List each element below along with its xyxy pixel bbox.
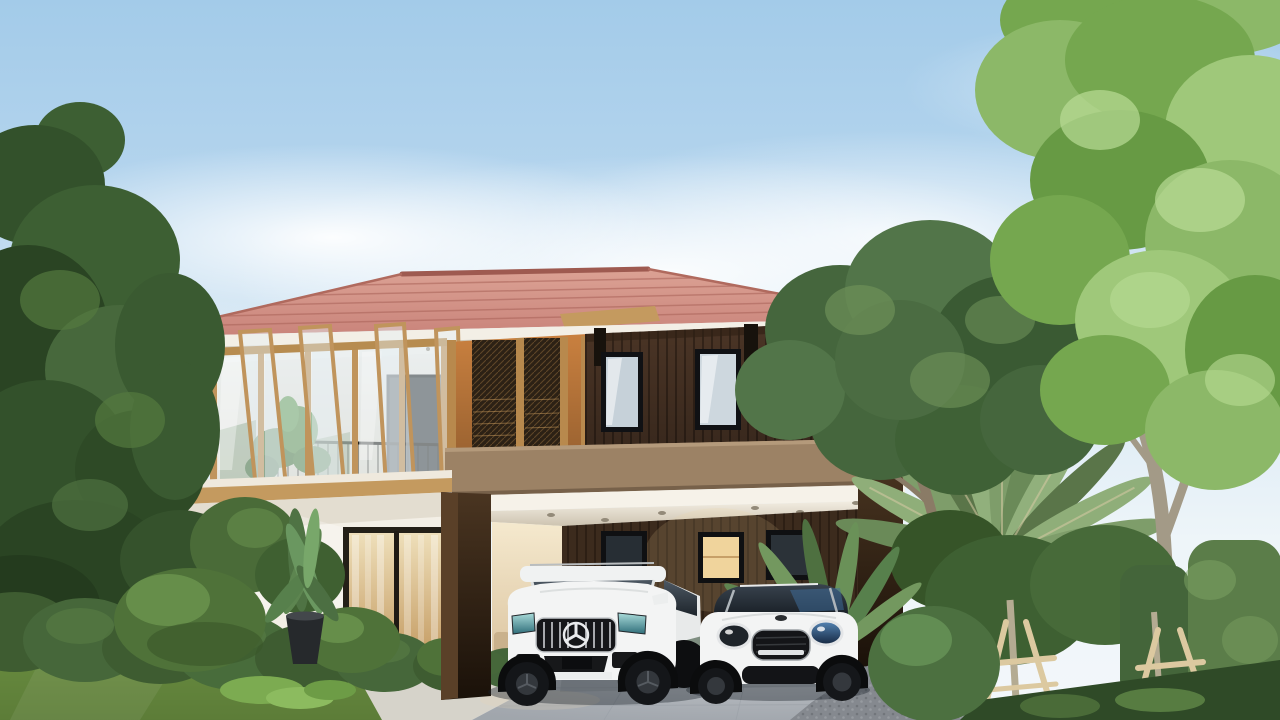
mesh-texture [524,338,560,446]
hedge-texture [1184,560,1236,600]
maple-highlight [1205,354,1275,406]
mesh-texture [472,340,516,448]
topiary-ball-large [114,568,266,672]
maple-highlight [1155,168,1245,232]
pot-rim [286,612,324,621]
bush-highlight [880,614,952,666]
suv-license-plate [562,657,592,669]
screen-wall [447,334,588,452]
mini-badge [775,615,787,621]
hedge-texture [1222,616,1278,664]
tree-highlight [52,479,128,531]
pillar-lit-face [441,492,458,700]
maple-highlight [1060,90,1140,150]
carport-window-lit [698,532,744,583]
upper-window-right [695,349,741,430]
rendered-scene [0,0,1280,720]
maple-highlight [1110,272,1190,328]
suv-roof [520,566,666,582]
tree-highlight [20,270,100,330]
mini-grille-chrome [758,650,804,655]
tree-highlight [825,285,895,335]
mini-wheel-left [698,668,734,704]
mini-wheel-right [823,663,861,701]
tree-highlight [95,392,165,448]
suv-grille [536,618,616,652]
suv-wheel-left [505,662,549,706]
groundcover-texture [1115,688,1205,712]
headlight-glint [725,630,733,635]
tree-highlight [910,352,990,408]
headlight-glint [817,627,825,632]
suv-headlight-left [512,613,535,634]
upper-window-left [601,352,643,432]
mini-grille [752,630,810,660]
mini-bumper-intake [742,666,820,684]
mini-headlight-right [810,621,842,645]
scene-svg [0,0,1280,720]
suv-wheel-right [625,659,671,705]
groundcover-texture [1020,694,1100,718]
mini-headlight-left [718,624,750,648]
suv-headlight-right [618,613,646,634]
right-garden [868,510,1280,720]
